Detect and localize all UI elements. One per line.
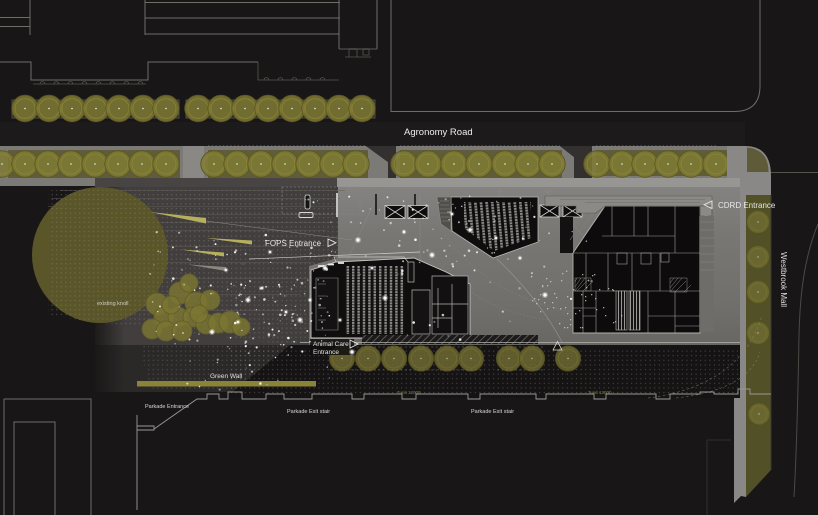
svg-text:FOPS Entrance: FOPS Entrance bbox=[265, 239, 322, 248]
svg-text:Entrance: Entrance bbox=[313, 349, 339, 356]
svg-text:Westbrook Mall: Westbrook Mall bbox=[779, 252, 788, 307]
svg-text:Parkade Exit stair: Parkade Exit stair bbox=[471, 409, 514, 415]
svg-text:Green Wall: Green Wall bbox=[210, 373, 243, 380]
svg-text:existing knoll: existing knoll bbox=[97, 301, 129, 307]
svg-text:Agronomy Road: Agronomy Road bbox=[404, 127, 473, 138]
svg-text:Animal Care: Animal Care bbox=[313, 341, 349, 348]
svg-text:CDRD Entrance: CDRD Entrance bbox=[718, 201, 776, 210]
svg-text:Parkade Exit stair: Parkade Exit stair bbox=[287, 409, 330, 415]
svg-text:Parkade Entrance: Parkade Entrance bbox=[145, 404, 189, 410]
